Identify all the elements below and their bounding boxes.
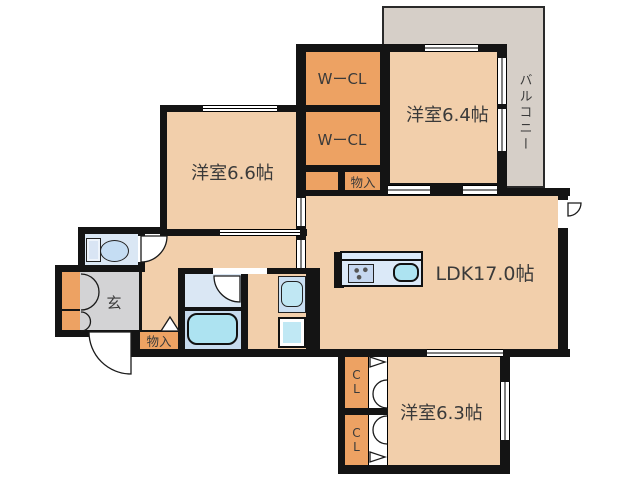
closet-door-arc [373,416,387,444]
bedroom-left-label: 洋室6.6帖 [180,161,285,183]
bedroom-top-right-label: 洋室6.4帖 [395,103,500,125]
balcony-label: バルコニー [511,38,537,188]
folding-door-triangle [370,452,385,462]
bedroom-bottom-label: 洋室6.3帖 [389,401,494,423]
bathroom-door-arc [214,276,240,302]
folding-door-triangle [370,357,385,367]
ldk-side-door-arc [568,203,581,216]
toilet-door-arc [141,236,167,262]
closet-lower-label: CL [346,417,367,463]
closet-upper-label: CL [346,358,367,406]
entrance-label: 玄 [96,293,132,311]
shoe-cabinet-door-arc [81,312,91,331]
storage-triangle-marker [161,317,179,331]
walkin-closet-upper-label: WーCL [306,69,378,87]
ldk-label: LDK17.0帖 [428,261,542,283]
closet-door-arc [373,380,387,408]
entrance-door-arc [89,332,131,374]
storage-lower-label: 物入 [141,333,177,348]
walkin-closet-lower-label: WーCL [306,130,378,148]
floor-plan: バルコニー WーCL WーCL 洋室6.4帖 洋室6.6帖 LDK17.0帖 洋… [0,0,640,480]
storage-upper-label: 物入 [345,174,381,189]
